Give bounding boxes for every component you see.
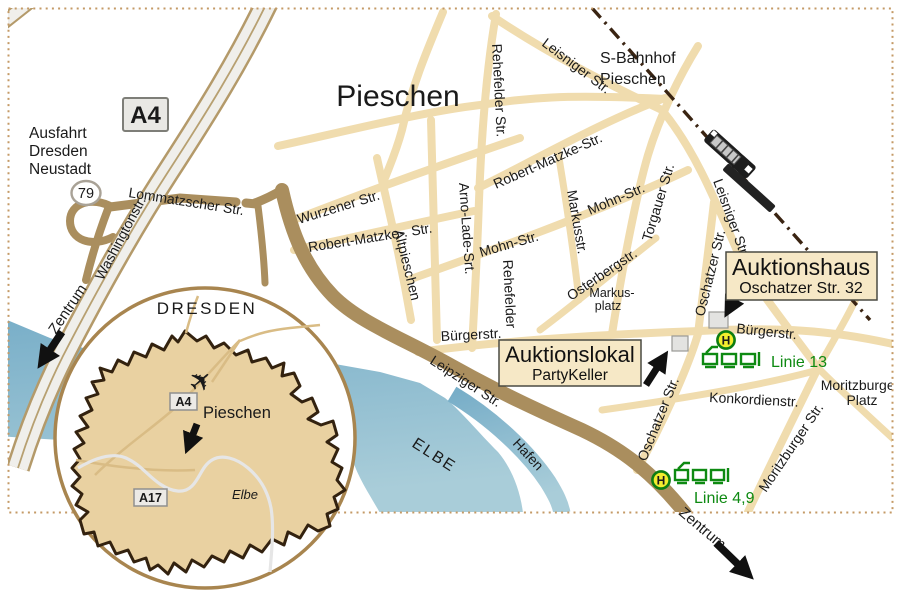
a4-badge-text: A4 (130, 102, 161, 129)
inset-title: DRESDEN (157, 299, 258, 318)
road-lommatzscher-2 (246, 203, 256, 204)
auktionslokal-title: Auktionslokal (505, 342, 635, 367)
street-label-mohn-w: Mohn-Str. (477, 228, 540, 260)
linie-13-label: Linie 13 (771, 354, 827, 371)
auktionslokal-arrow (646, 357, 664, 385)
street-label-moritzburger: Moritzburger Str. (755, 400, 826, 495)
auktionshaus-building (709, 312, 728, 328)
auktionslokal-subtitle: PartyKeller (532, 367, 608, 384)
street-label-oschatzer-n: Oschatzer Str. (691, 228, 728, 318)
place-label-moritzburger-platz-1: Moritzburger (821, 377, 900, 393)
a4-badge: A4 (123, 98, 168, 131)
inset-a4-badge: A4 (170, 393, 197, 410)
map-canvas: Lommatzscher Str. Washingtonstr. Wurzene… (0, 0, 900, 608)
street-label-buergerstr-w: Bürgerstr. (440, 325, 501, 344)
sbahn-label-1: S-Bahnhof (600, 50, 676, 67)
auktionshaus-title: Auktionshaus (732, 254, 870, 280)
pieschen-map: Lommatzscher Str. Washingtonstr. Wurzene… (0, 0, 900, 608)
road-moritzburger-str (748, 368, 818, 512)
tram-icon-13 (703, 347, 759, 367)
zentrum-right-arrow (716, 543, 748, 574)
street-label-robert-matzke-w: Robert-Matzke-. Str. (307, 220, 433, 255)
street-label-konkordienstr: Konkordienstr. (709, 389, 799, 410)
place-label-markusplatz-1: Markus- (589, 286, 634, 300)
ramp-79-badge: 79 (72, 181, 101, 205)
inset-a17-badge: A17 (134, 489, 167, 506)
place-label-markusplatz-2: platz (595, 299, 621, 313)
inset-a4-text: A4 (176, 395, 192, 409)
street-label-altpieschen: Altpieschen (391, 228, 424, 302)
street-label-wurzener: Wurzener Str. (295, 187, 381, 227)
corner-road-stub (0, 0, 42, 30)
linie-49-label: Linie 4,9 (694, 490, 755, 507)
street-label-rehefelder-s: Rehefelder (500, 259, 520, 329)
stop-h-icon-49: H (657, 474, 666, 488)
exit-label-1: Ausfahrt (29, 125, 87, 142)
inset-a17-text: A17 (139, 491, 162, 505)
inset-elbe-label: Elbe (232, 487, 258, 502)
zentrum-right-group: Zentrum (675, 504, 748, 574)
tram-icon-49 (675, 463, 728, 483)
auktionslokal-callout: Auktionslokal PartyKeller (499, 340, 664, 386)
auktionshaus-subtitle: Oschatzer Str. 32 (739, 280, 863, 297)
dresden-inset: DRESDEN ✈ A4 A17 Pieschen Elbe (55, 288, 355, 588)
place-label-moritzburger-platz-2: Platz (846, 392, 877, 408)
street-label-rehefelder-n: Rehefelder Str. (489, 43, 510, 137)
sbahn-label-2: Pieschen (600, 71, 666, 88)
exit-label-3: Neustadt (29, 161, 92, 178)
inset-pieschen-label: Pieschen (203, 404, 271, 422)
exit-label-2: Dresden (29, 143, 88, 160)
auktionslokal-building (672, 336, 688, 351)
street-label-oschatzer-s: Oschatzer Str. (634, 375, 682, 463)
ramp-79-text: 79 (78, 186, 94, 202)
district-title: Pieschen (336, 80, 459, 113)
stop-h-icon-13: H (722, 334, 731, 348)
road-small-south (258, 206, 265, 283)
